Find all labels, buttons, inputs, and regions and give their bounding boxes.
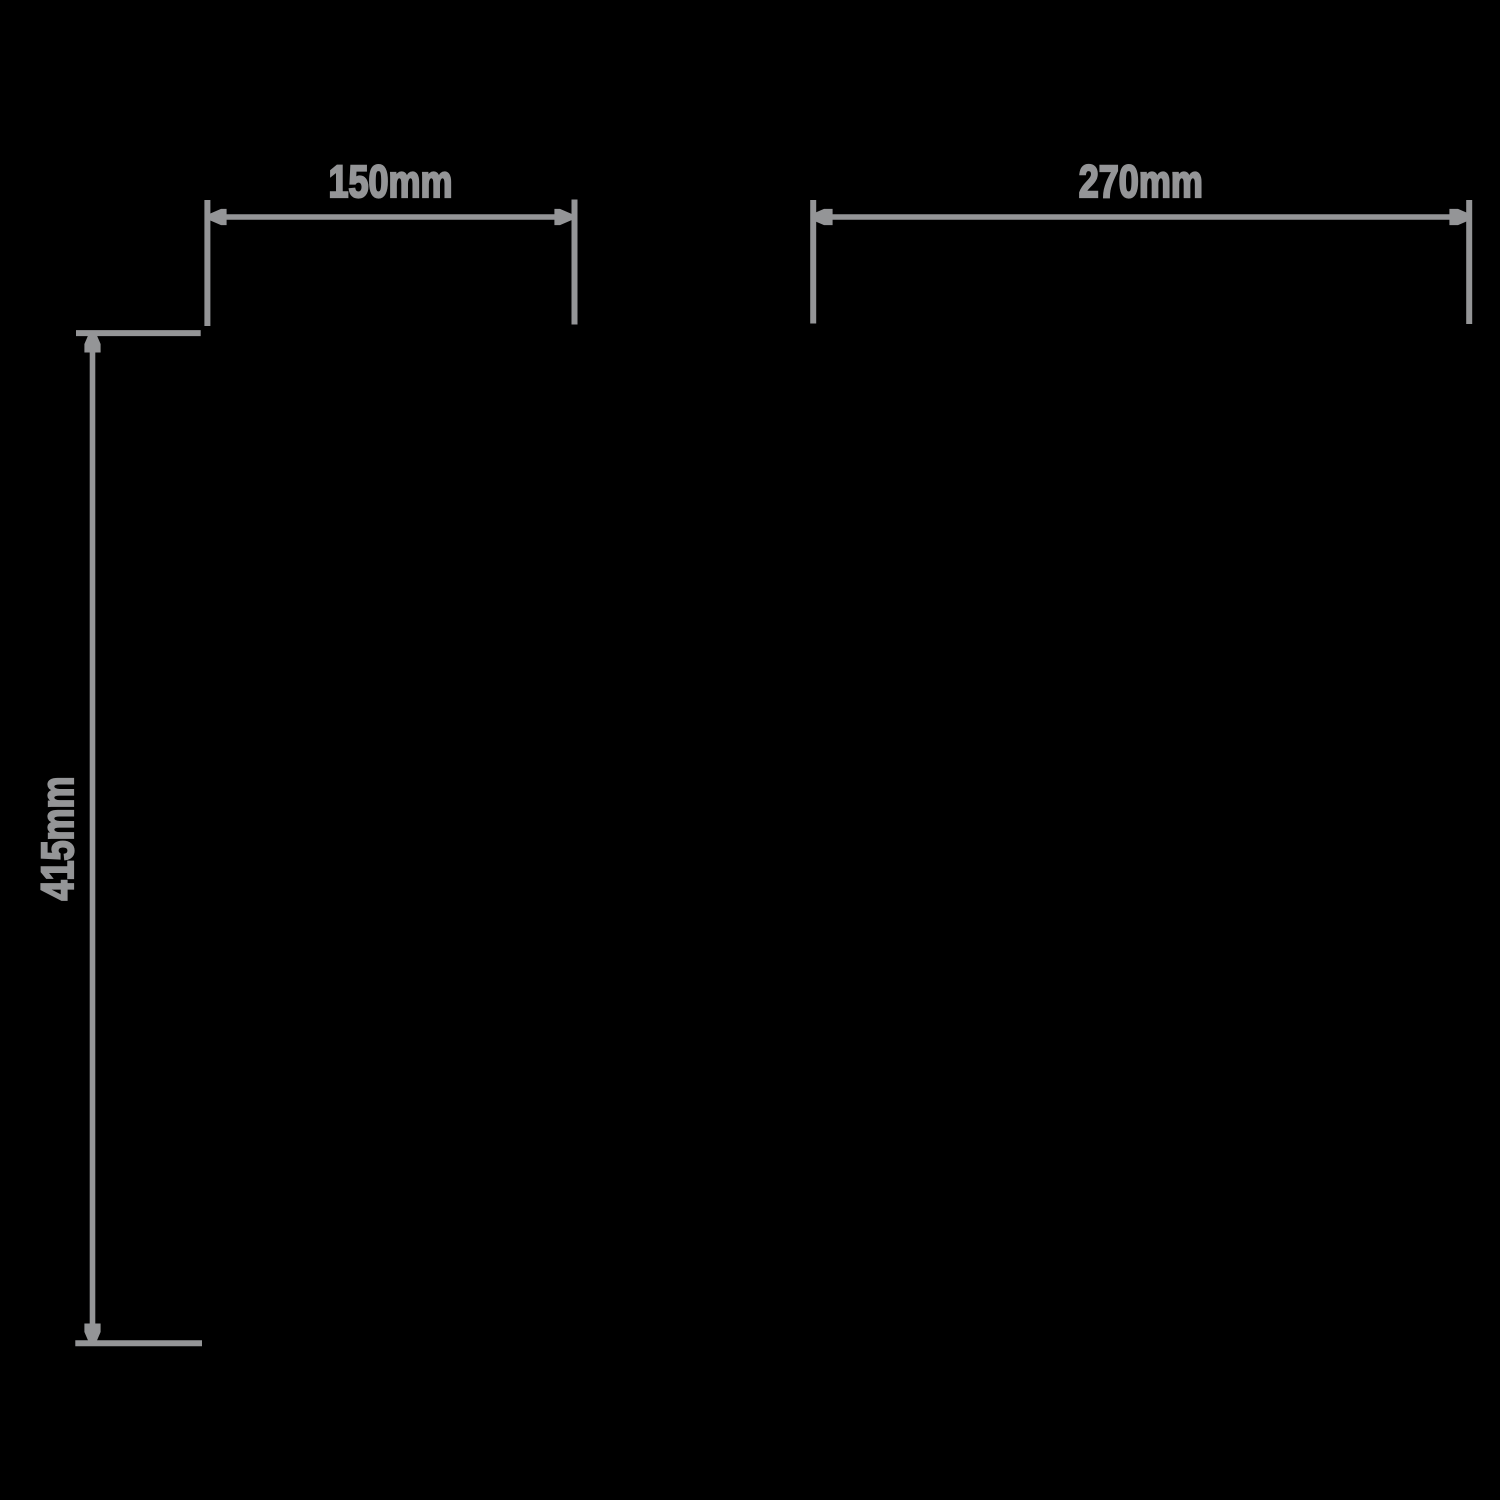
svg-text:415mm: 415mm xyxy=(32,776,83,900)
svg-text:150mm: 150mm xyxy=(328,156,452,207)
svg-text:270mm: 270mm xyxy=(1079,156,1203,207)
